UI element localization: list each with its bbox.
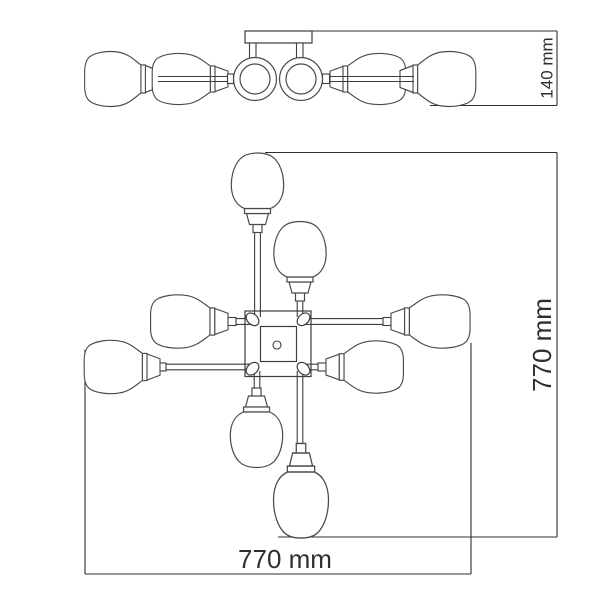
lamp-shade: [330, 53, 406, 104]
mount-stem: [250, 43, 257, 58]
lamp-shade: [84, 340, 160, 393]
lamp-shade: [274, 222, 326, 302]
lamp-shade: [85, 52, 158, 107]
lamp-shade: [231, 153, 283, 233]
height-dimension-label: 140 mm: [538, 37, 557, 98]
joint: [383, 318, 391, 326]
center-hole: [273, 341, 281, 349]
lamp-shade: [274, 443, 329, 538]
lamp-shade: [391, 295, 470, 348]
plan-width-dimension-label: 770 mm: [238, 544, 332, 574]
mount-stem: [297, 43, 304, 58]
joint: [228, 74, 234, 84]
joint: [228, 318, 236, 326]
shade-rim-inner: [286, 64, 316, 94]
lamp-shade: [230, 388, 282, 468]
side-view: 140 mm: [85, 31, 557, 106]
shade-rim-inner: [240, 64, 270, 94]
technical-drawing-canvas: 140 mm: [0, 0, 600, 600]
joint: [318, 363, 326, 371]
joint: [323, 74, 330, 84]
chandelier-dimension-drawing: 140 mm: [0, 0, 600, 600]
plan-view: 770 mm 770 mm: [84, 153, 557, 575]
lamp-shade: [152, 53, 228, 104]
plan-height-dimension-label: 770 mm: [527, 298, 557, 392]
lamp-shade: [400, 52, 476, 107]
shade-rim-rings: [234, 58, 323, 101]
lamp-shade: [151, 295, 228, 348]
lamp-shade: [326, 341, 403, 393]
ceiling-plate: [245, 31, 312, 43]
